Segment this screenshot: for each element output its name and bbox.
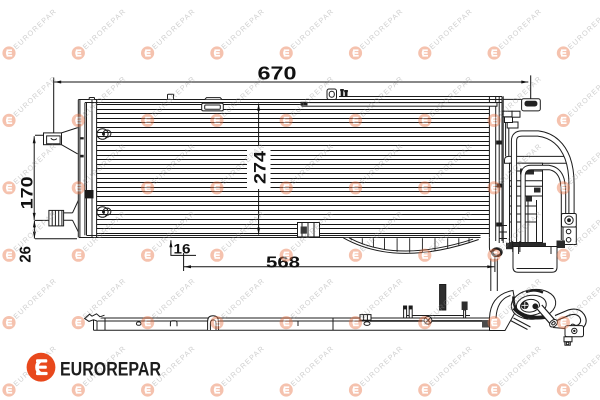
svg-text:EUROREPAR: EUROREPAR [60,360,161,381]
svg-text:16: 16 [174,242,192,257]
